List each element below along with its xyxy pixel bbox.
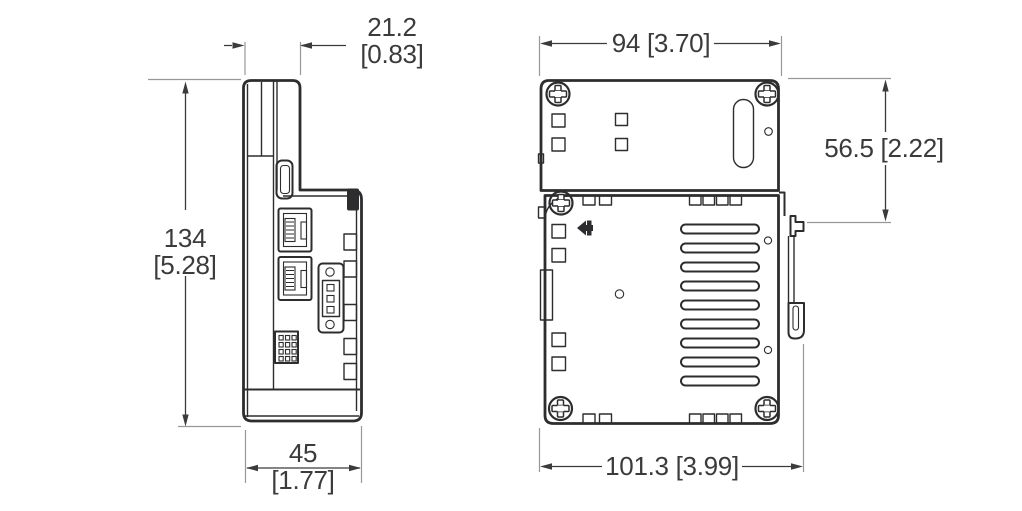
dim-front-right-height: 56.5 [2.22] — [788, 79, 944, 223]
ethernet-port-1 — [279, 209, 312, 252]
dim-front-top-width: 94 [3.70] — [540, 28, 782, 76]
connector-screw-top — [326, 268, 334, 276]
dim-label-side-height-in: [5.28] — [153, 250, 216, 280]
serial-connector — [319, 264, 344, 333]
step-inner-line — [283, 196, 357, 411]
dim-label-front-right: 56.5 [2.22] — [824, 133, 944, 163]
upper-small-hole — [765, 128, 773, 136]
upper-indicator-windows — [552, 114, 628, 152]
dim-side-top-width: 21.2 [0.83] — [224, 12, 424, 75]
upper-section-outline — [541, 81, 779, 191]
tower-inner-lines — [248, 81, 278, 417]
dim-label-side-bottom-in: [1.77] — [271, 465, 334, 495]
ethernet-port-2 — [279, 257, 312, 300]
config-connector — [275, 332, 298, 364]
dimension-drawing: 21.2 [0.83] 134 [5.28] 45 [1.77] — [0, 0, 1022, 511]
din-rail-clip — [779, 193, 804, 339]
side-view — [244, 81, 362, 422]
label-slot — [734, 100, 754, 168]
left-edge-channel — [541, 270, 553, 320]
top-edge-notches — [583, 196, 742, 206]
screw-bottom-right-icon — [756, 397, 779, 420]
dim-label-side-top-in: [0.83] — [360, 39, 423, 69]
dim-label-side-bottom-mm: 45 — [289, 438, 317, 468]
pin-grid — [279, 336, 296, 362]
release-arrow-icon — [577, 221, 593, 236]
usb-port — [277, 161, 293, 199]
dim-side-height: 134 [5.28] — [148, 80, 241, 427]
lower-left-windows — [552, 225, 566, 371]
connector-screw-bottom — [326, 320, 334, 328]
dim-label-side-top-mm: 21.2 — [367, 12, 416, 42]
dim-label-side-height-mm: 134 — [164, 223, 206, 253]
bottom-edge-notches — [583, 414, 742, 424]
screw-top-right-icon — [756, 83, 779, 106]
screw-lower-top-left-icon — [550, 192, 573, 215]
screw-bottom-left-icon — [549, 397, 572, 420]
dim-label-front-top: 94 [3.70] — [612, 28, 711, 58]
front-view — [539, 81, 805, 424]
drawing-canvas: 21.2 [0.83] 134 [5.28] 45 [1.77] — [0, 0, 1022, 511]
vent-hole-bottom — [764, 346, 771, 353]
dim-side-bottom-width: 45 [1.77] — [246, 426, 362, 495]
vent-slots — [681, 225, 759, 386]
dim-label-front-bottom: 101.3 [3.99] — [605, 451, 739, 481]
screw-top-left-icon — [547, 83, 570, 106]
vent-hole-top — [764, 237, 771, 244]
center-hole — [615, 290, 623, 298]
